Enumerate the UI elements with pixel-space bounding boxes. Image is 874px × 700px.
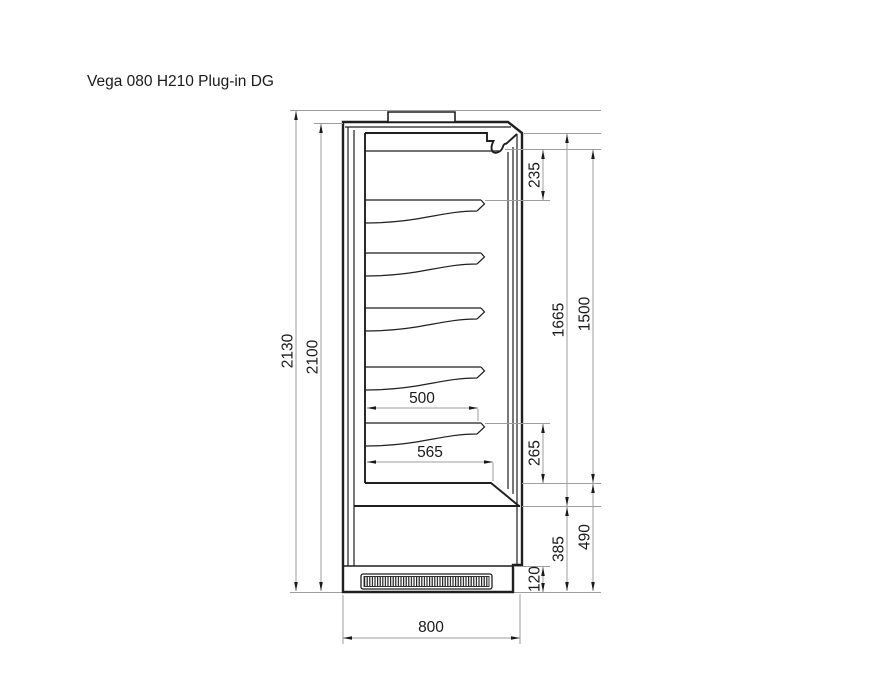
dim-overall-height: 2130 xyxy=(279,111,296,591)
dim-label-deck-to-ground: 490 xyxy=(576,524,593,550)
dim-label-interior-to-step: 1665 xyxy=(550,303,567,337)
dim-interior-to-deck: 1500 xyxy=(576,150,593,483)
dim-label-body-height: 2100 xyxy=(304,339,321,374)
dim-label-overall-depth: 800 xyxy=(418,619,444,636)
dim-label-last-shelf-to-deck: 265 xyxy=(526,440,543,466)
dim-overall-depth: 800 xyxy=(343,619,520,638)
top-cap xyxy=(388,112,455,122)
dim-lower-section-height: 385 xyxy=(550,507,567,591)
dim-label-canopy-to-first-shelf: 235 xyxy=(526,162,543,188)
dim-label-overall-height: 2130 xyxy=(279,333,296,368)
dim-body-height: 2100 xyxy=(304,124,321,591)
dim-label-lower-section-height: 385 xyxy=(550,536,567,562)
technical-drawing: 2130 2100 235 265 120 1665 385 1500 xyxy=(0,0,874,700)
dim-last-shelf-to-deck: 265 xyxy=(526,424,543,483)
dim-label-deck-depth: 565 xyxy=(417,444,443,461)
dim-deck-to-ground: 490 xyxy=(576,484,593,591)
dim-canopy-to-first-shelf: 235 xyxy=(526,150,543,200)
dim-label-plinth-height: 120 xyxy=(526,566,543,592)
drawing-page: 2130 2100 235 265 120 1665 385 1500 xyxy=(0,0,874,700)
ventilation-grille xyxy=(361,574,492,589)
dim-plinth-height: 120 xyxy=(526,566,543,592)
cabinet xyxy=(343,112,522,592)
cabinet-silhouette xyxy=(343,122,522,592)
drawing-title: Vega 080 H210 Plug-in DG xyxy=(87,73,274,90)
dim-label-interior-to-deck: 1500 xyxy=(576,296,593,331)
dim-label-shelf-depth: 500 xyxy=(409,390,435,407)
dim-interior-to-step: 1665 xyxy=(550,134,567,506)
